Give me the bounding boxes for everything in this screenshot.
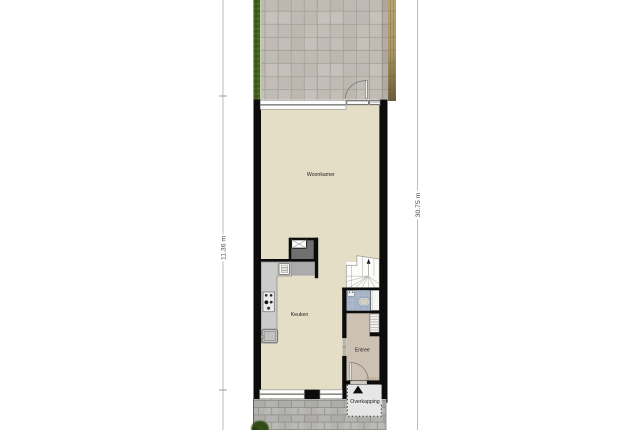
svg-text:30.75 m: 30.75 m — [415, 192, 422, 217]
svg-text:11.36 m: 11.36 m — [220, 236, 227, 260]
svg-text:Entree: Entree — [355, 348, 370, 354]
svg-text:Overkapping: Overkapping — [350, 399, 380, 405]
svg-text:Woonkamer: Woonkamer — [307, 172, 335, 178]
svg-text:Keuken: Keuken — [291, 312, 309, 318]
